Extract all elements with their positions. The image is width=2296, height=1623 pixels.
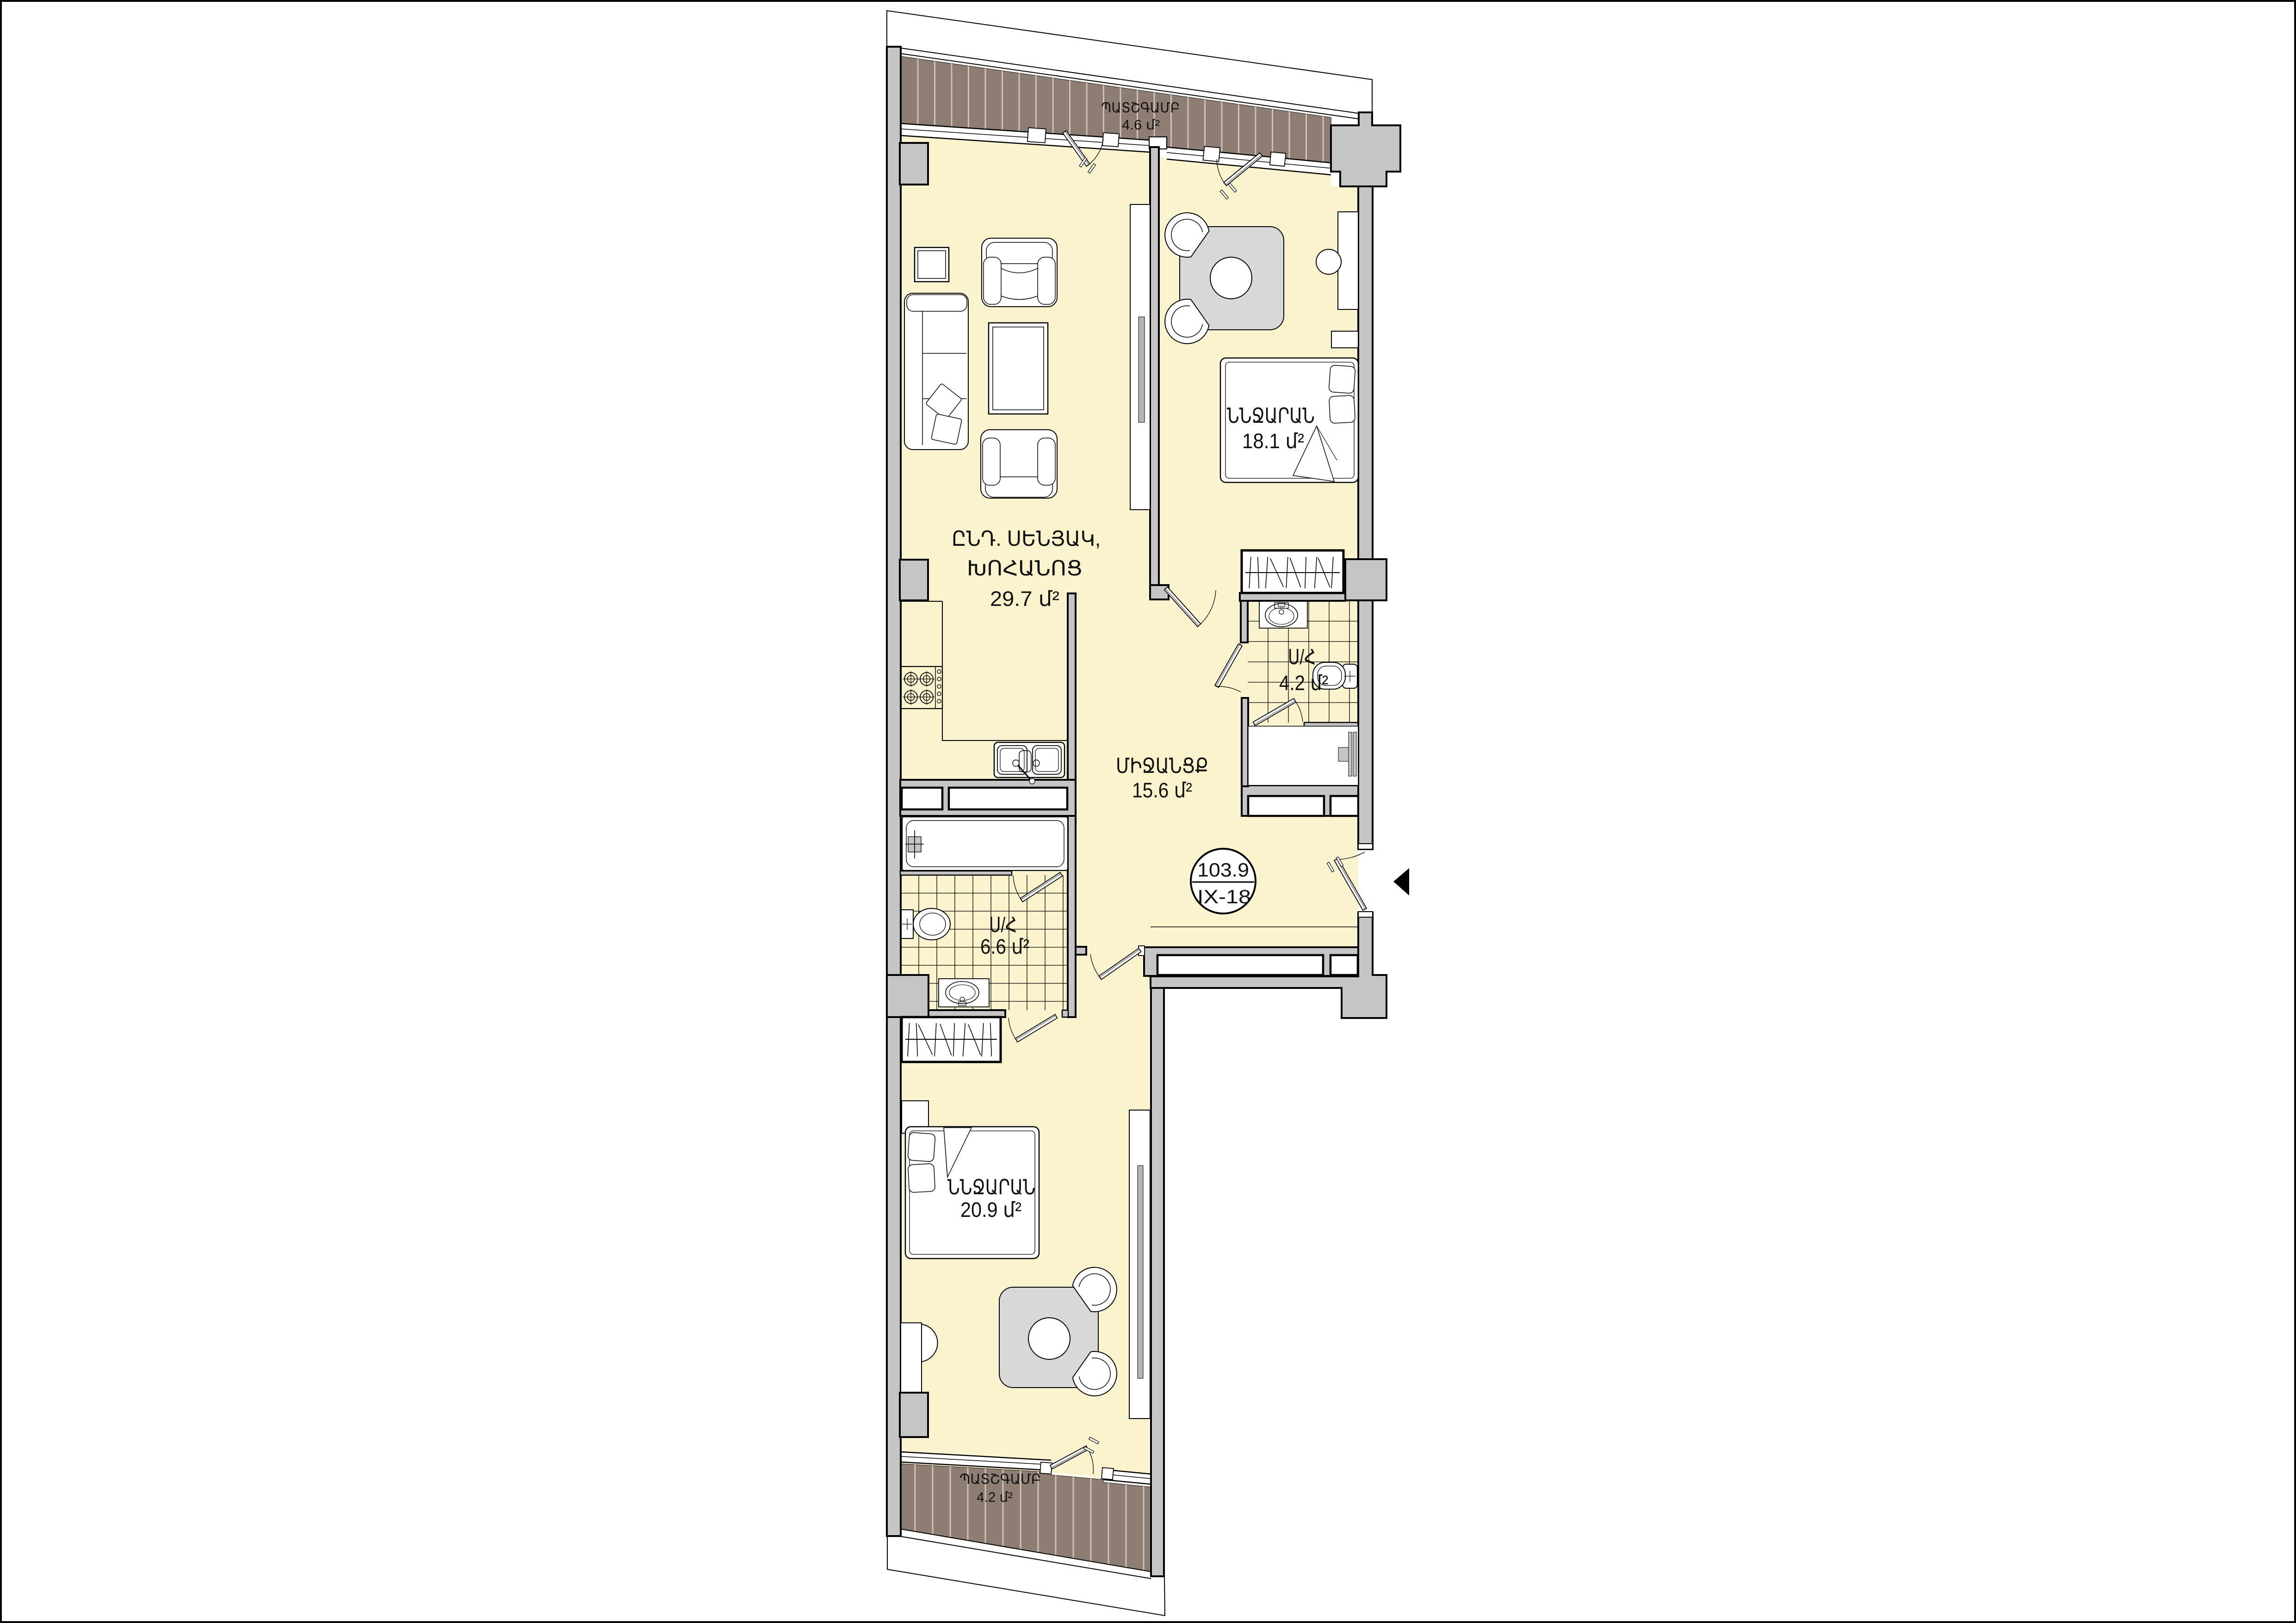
svg-text:IX-18: IX-18 — [1197, 886, 1251, 907]
svg-text:Ս/Հ: Ս/Հ — [989, 913, 1017, 937]
svg-text:18.1 մ²: 18.1 մ² — [1242, 429, 1304, 453]
svg-text:ՆՆՋԱՐԱՆ: ՆՆՋԱՐԱՆ — [1227, 404, 1315, 427]
svg-text:6.6 մ²: 6.6 մ² — [980, 935, 1029, 958]
svg-text:ՄԻՋԱՆՑՔ: ՄԻՋԱՆՑՔ — [1116, 754, 1208, 778]
svg-text:4.2 մ²: 4.2 մ² — [1279, 671, 1328, 695]
svg-text:4.2 մ²: 4.2 մ² — [977, 1490, 1013, 1505]
svg-text:15.6 մ²: 15.6 մ² — [1132, 778, 1192, 802]
svg-text:ԽՈՀԱՆՈՑ: ԽՈՀԱՆՈՑ — [967, 556, 1083, 580]
svg-text:ՊԱՏՇԳԱՄԲ: ՊԱՏՇԳԱՄԲ — [1101, 100, 1180, 116]
svg-text:ԸՆԴ. ՍԵՆՅԱԿ,: ԸՆԴ. ՍԵՆՅԱԿ, — [952, 527, 1101, 550]
svg-text:ՊԱՏՇԳԱՄԲ: ՊԱՏՇԳԱՄԲ — [959, 1472, 1041, 1487]
svg-text:20.9 մ²: 20.9 մ² — [960, 1198, 1021, 1222]
svg-text:4.6 մ²: 4.6 մ² — [1122, 117, 1160, 133]
svg-text:29.7 մ²: 29.7 մ² — [990, 587, 1059, 611]
svg-text:Ս/Հ: Ս/Հ — [1288, 645, 1316, 669]
svg-text:103.9: 103.9 — [1197, 859, 1249, 881]
svg-text:ՆՆՋԱՐԱՆ: ՆՆՋԱՐԱՆ — [947, 1175, 1035, 1199]
